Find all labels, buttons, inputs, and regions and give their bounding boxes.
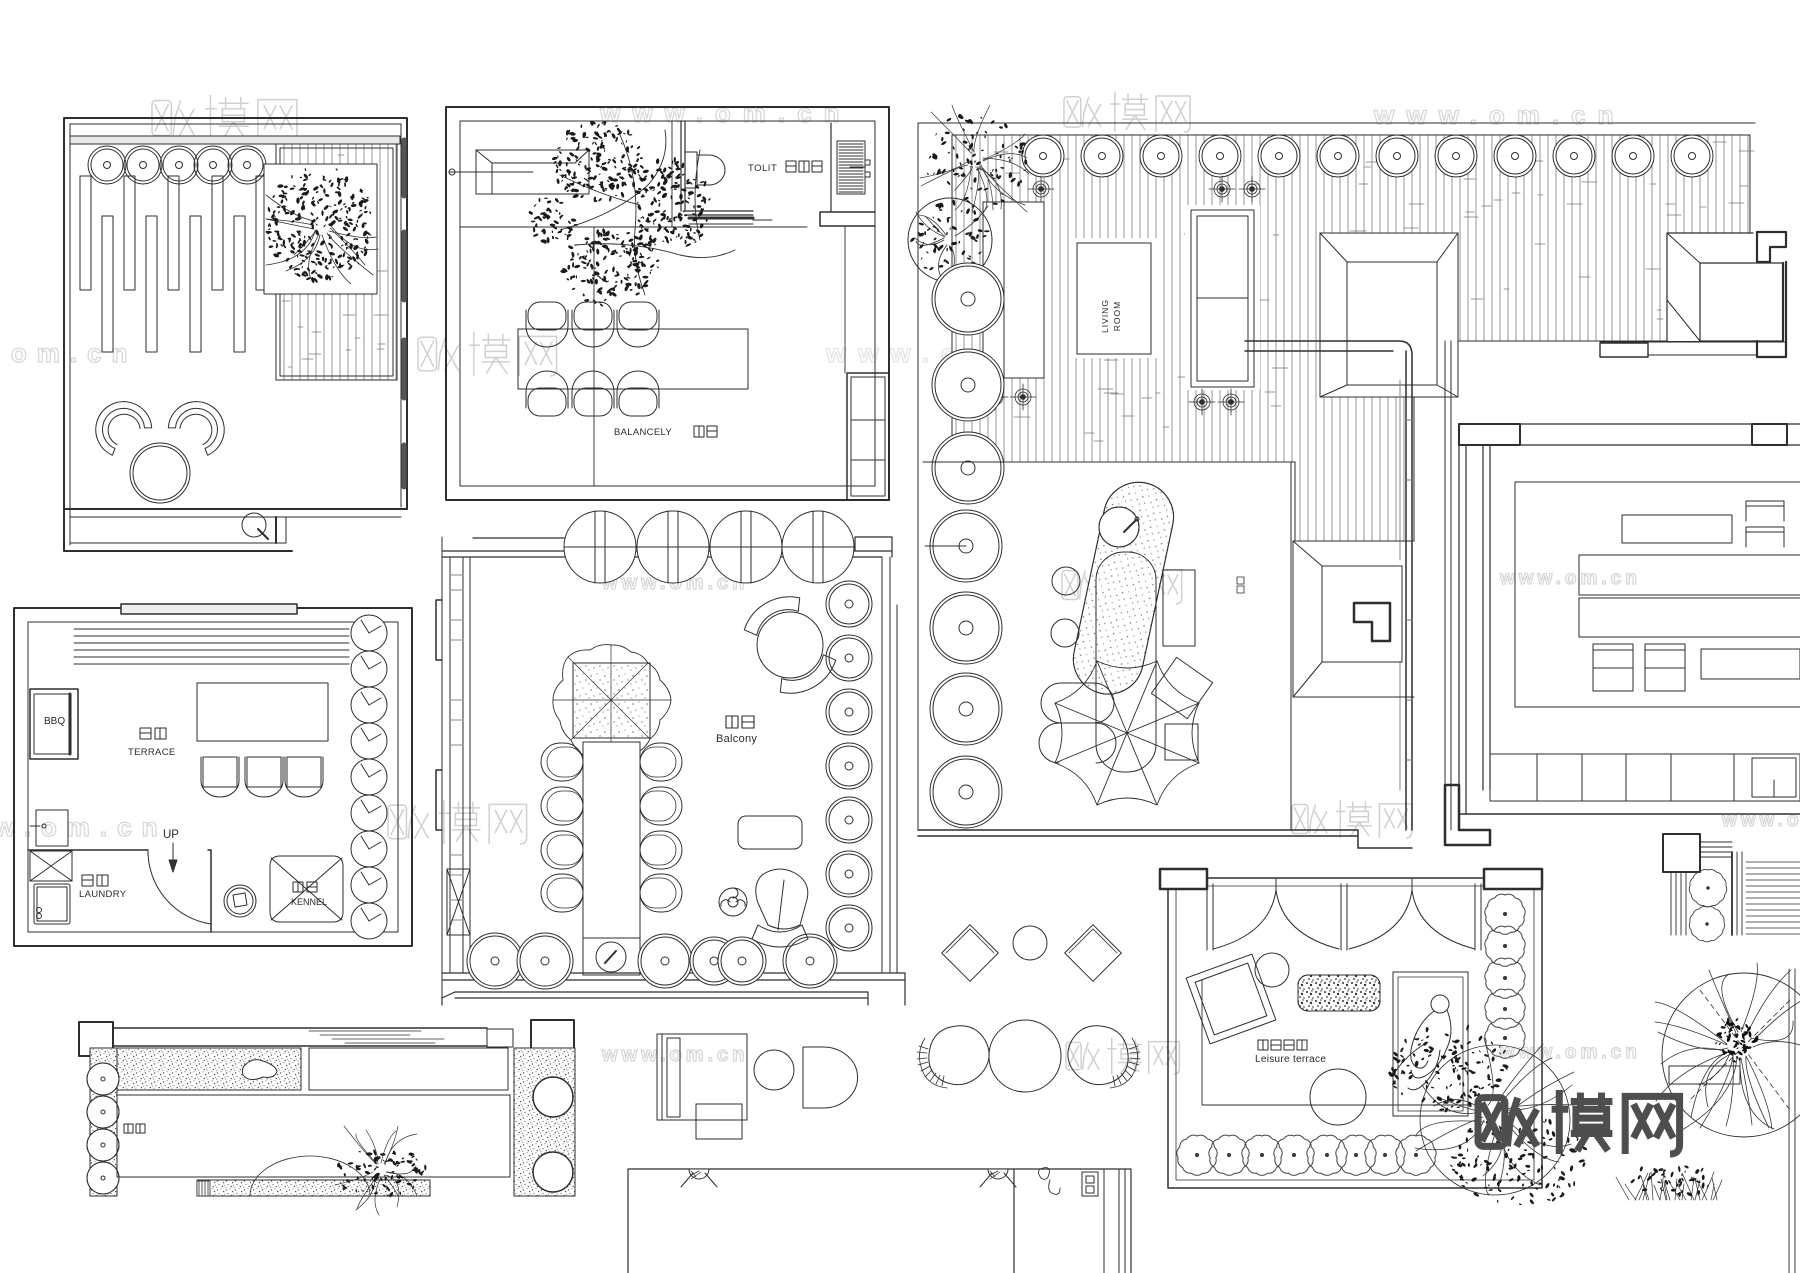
svg-text:TERRACE: TERRACE: [128, 747, 176, 758]
svg-text:LAUNDRY: LAUNDRY: [79, 889, 127, 900]
svg-text:www.om.cn: www.om.cn: [1721, 810, 1800, 831]
svg-text:UP: UP: [163, 829, 179, 841]
svg-text:www.om.cn: www.om.cn: [0, 812, 168, 842]
svg-text:BBQ: BBQ: [44, 716, 65, 727]
svg-text:www.om.cn: www.om.cn: [599, 98, 852, 128]
svg-text:www.om.cn: www.om.cn: [1499, 568, 1641, 589]
svg-text:Leisure terrace: Leisure terrace: [1255, 1054, 1326, 1065]
svg-text:LIVING: LIVING: [1100, 299, 1110, 333]
svg-text:TOLIT: TOLIT: [748, 163, 777, 174]
svg-text:BALANCELY: BALANCELY: [614, 427, 672, 438]
svg-text:ROOM: ROOM: [1112, 301, 1122, 331]
svg-text:KENNEL: KENNEL: [291, 897, 327, 907]
svg-text:www.om.cn: www.om.cn: [1373, 100, 1626, 130]
svg-text:Balcony: Balcony: [716, 733, 757, 745]
svg-text:www.om.cn: www.om.cn: [0, 338, 138, 368]
svg-text:www.om.cn: www.om.cn: [601, 1044, 748, 1066]
svg-text:www.om.cn: www.om.cn: [1499, 1042, 1641, 1063]
